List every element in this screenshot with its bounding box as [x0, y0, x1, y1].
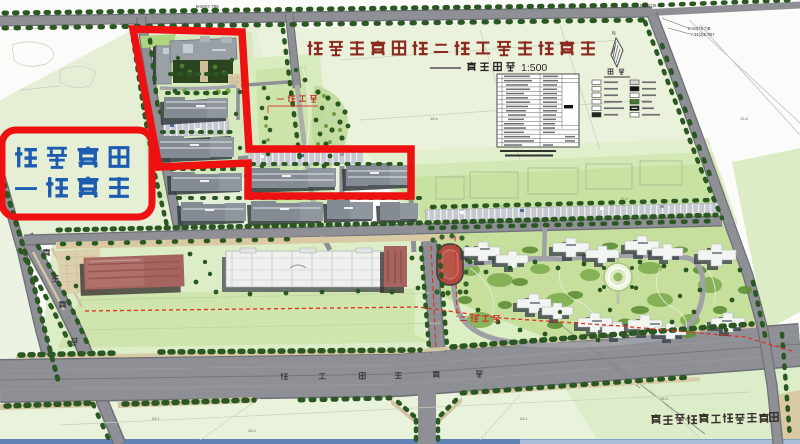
- svg-text:28.3: 28.3: [660, 396, 669, 401]
- svg-text:B-64X7.7B6: B-64X7.7B6: [196, 4, 219, 9]
- svg-text:28.1: 28.1: [152, 416, 161, 421]
- svg-text:B-64(75.7)B: B-64(75.7)B: [688, 26, 711, 31]
- svg-text:B-64(2)5.7B7: B-64(2)5.7B7: [640, 3, 666, 8]
- svg-text:28.1: 28.1: [520, 416, 529, 421]
- svg-text:28.4: 28.4: [248, 428, 257, 433]
- svg-text:Y-34(2)6.7B7: Y-34(2)6.7B7: [690, 32, 715, 37]
- svg-text:N: N: [612, 31, 616, 37]
- svg-text:1:500: 1:500: [521, 62, 547, 74]
- svg-text:16.4: 16.4: [430, 116, 439, 121]
- svg-text:15.8: 15.8: [740, 116, 749, 121]
